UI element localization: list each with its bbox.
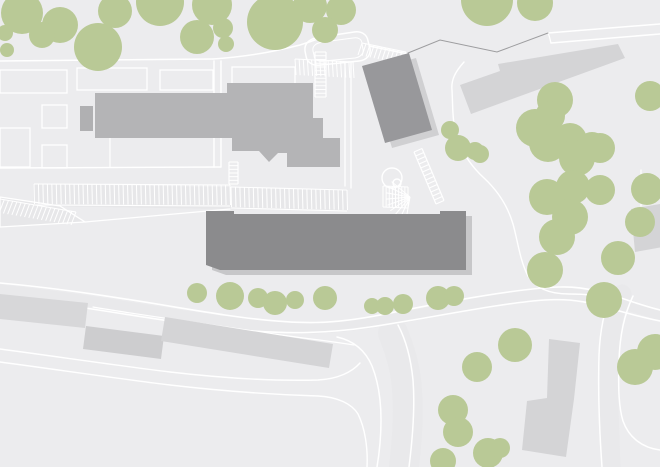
map-line	[212, 185, 213, 205]
map-line	[177, 185, 178, 205]
map-line	[128, 184, 129, 204]
tree	[218, 36, 234, 52]
map-line	[334, 190, 335, 210]
tree	[585, 175, 615, 205]
map-line	[145, 185, 146, 205]
map-line	[38, 184, 39, 204]
tree	[444, 286, 464, 306]
map-line	[56, 184, 57, 204]
tree	[586, 282, 622, 318]
map-line	[105, 184, 106, 204]
map-line	[114, 184, 115, 204]
tree	[263, 291, 287, 315]
map-line	[159, 185, 160, 205]
building-annex	[80, 106, 93, 131]
map-line	[240, 187, 241, 207]
map-line	[244, 187, 245, 207]
map-line	[235, 187, 236, 207]
tree	[527, 252, 563, 288]
map-line	[74, 184, 75, 204]
map-line	[190, 185, 191, 205]
tree	[312, 17, 338, 43]
building-long-block	[206, 211, 466, 270]
south-branch-surface	[393, 333, 408, 467]
tree	[180, 20, 214, 54]
map-line	[276, 188, 277, 208]
map-line	[249, 187, 250, 207]
map-line	[34, 184, 35, 204]
map-line	[110, 184, 111, 204]
map-line	[203, 185, 204, 205]
map-line	[119, 184, 120, 204]
tree	[617, 349, 653, 385]
tree	[443, 417, 473, 447]
map-line	[320, 189, 321, 209]
tree	[376, 297, 394, 315]
map-line	[208, 185, 209, 205]
map-line	[325, 189, 326, 209]
tree	[29, 22, 55, 48]
map-line	[47, 184, 48, 204]
map-line	[163, 185, 164, 205]
map-line	[307, 189, 308, 209]
tree	[498, 328, 532, 362]
map-line	[150, 185, 151, 205]
map-line	[253, 188, 254, 208]
map-line	[338, 190, 339, 210]
tree	[187, 283, 207, 303]
map-line	[199, 185, 200, 205]
map-line	[280, 188, 281, 208]
map-line	[141, 185, 142, 205]
tree	[585, 133, 615, 163]
map-line	[285, 188, 286, 208]
map-line	[293, 189, 294, 209]
map-line	[298, 189, 299, 209]
map-line	[316, 189, 317, 209]
map-line	[231, 187, 232, 207]
map-line	[43, 184, 44, 204]
map-line	[83, 184, 84, 204]
map-line	[154, 185, 155, 205]
tree	[216, 282, 244, 310]
map-line	[226, 185, 227, 205]
map-line	[181, 185, 182, 205]
map-line	[87, 184, 88, 204]
map-line	[302, 189, 303, 209]
tree	[445, 135, 471, 161]
tree	[0, 43, 14, 57]
map-line	[65, 184, 66, 204]
map-line	[271, 188, 272, 208]
map-line	[168, 185, 169, 205]
stall-row-loop-south	[295, 59, 354, 78]
map-line	[267, 188, 268, 208]
map-line	[289, 189, 290, 209]
map-line	[311, 189, 312, 209]
map-line	[258, 188, 259, 208]
map-line	[96, 184, 97, 204]
tree	[213, 18, 233, 38]
site-plan	[0, 0, 660, 467]
map-line	[221, 185, 222, 205]
tree	[286, 291, 304, 309]
map-line	[70, 184, 71, 204]
map-line	[52, 184, 53, 204]
map-line	[61, 184, 62, 204]
map-line	[329, 190, 330, 210]
map-line	[123, 184, 124, 204]
map-line	[185, 185, 186, 205]
tree	[462, 352, 492, 382]
map-line	[79, 184, 80, 204]
map-line	[172, 185, 173, 205]
map-line	[347, 190, 348, 210]
tree	[471, 145, 489, 163]
map-line	[230, 185, 231, 205]
map-line	[217, 185, 218, 205]
map-line	[194, 185, 195, 205]
tree	[490, 438, 510, 458]
map-line	[136, 185, 137, 205]
tree	[393, 294, 413, 314]
site-plan-svg	[0, 0, 660, 467]
tree	[74, 23, 122, 71]
tree	[601, 241, 635, 275]
tree	[539, 219, 575, 255]
map-line	[262, 188, 263, 208]
tree	[313, 286, 337, 310]
map-line	[343, 190, 344, 210]
map-line	[92, 184, 93, 204]
map-line	[132, 185, 133, 205]
stairs-parking	[229, 162, 238, 184]
map-line	[101, 184, 102, 204]
tree	[625, 207, 655, 237]
